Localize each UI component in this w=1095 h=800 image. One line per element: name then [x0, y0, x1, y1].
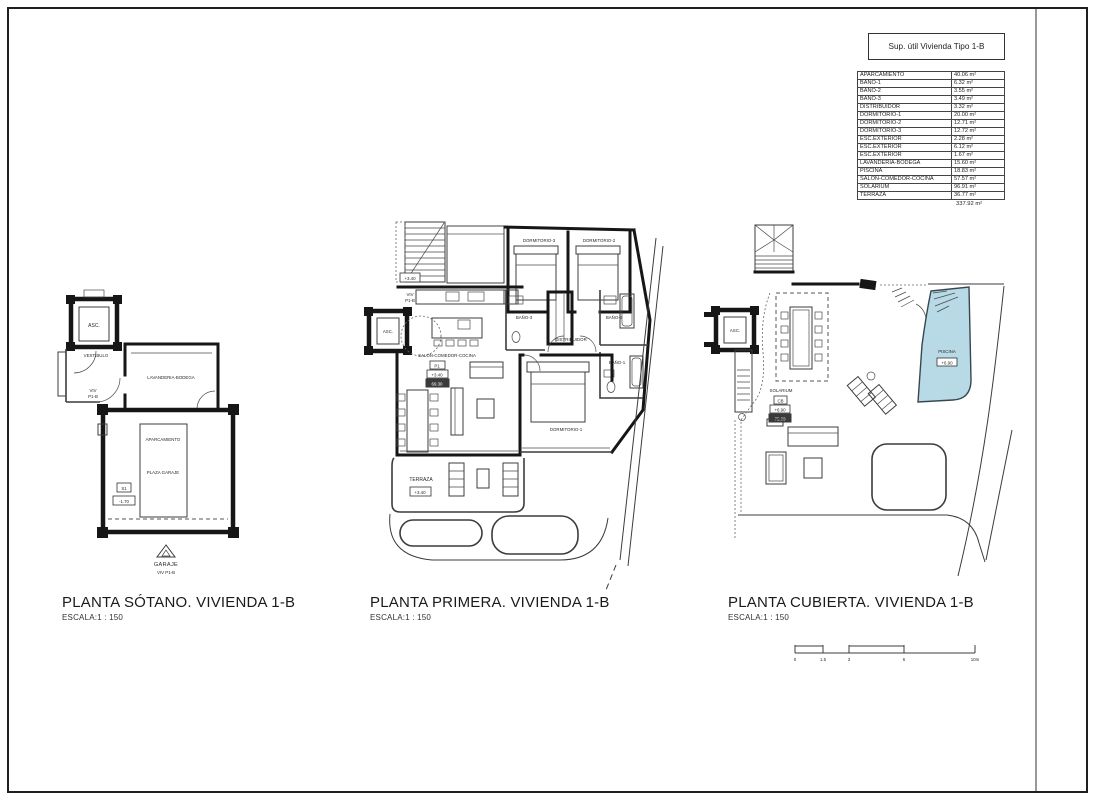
room-area: 96.91 m² [952, 184, 1005, 192]
svg-text:+6.90: +6.90 [941, 360, 953, 365]
level-tag-s1: S1 [117, 483, 131, 492]
plan-title-text: PLANTA PRIMERA. VIVIENDA 1-B [370, 594, 610, 611]
plan-primera-drawing: +3.40 DORMITORIO-3 DORMITORI [364, 222, 663, 590]
label-viv-p1b: P1-B [88, 394, 98, 399]
room-area: 3.49 m² [952, 96, 1005, 104]
living-room: SALÓN-COMEDOR-COCINA P1 +3.40 69.30 [397, 316, 520, 455]
label-viv-p1b: VIV [89, 388, 96, 393]
svg-text:+3.40: +3.40 [431, 372, 443, 377]
access-ladder [735, 350, 752, 421]
plan-title-cubierta: PLANTA CUBIERTA. VIVIENDA 1-B ESCALA:1 :… [728, 594, 974, 622]
room-label: BAÑO-2 [858, 88, 952, 96]
stairs-primera: +3.40 [396, 222, 445, 282]
label-lavanderia: LAVANDERIA-BODEGA [147, 375, 194, 380]
table-row: ESC.EXTERIOR1.67 m² [858, 152, 1005, 160]
room-label: TERRAZA [858, 192, 952, 200]
terrace: TERRAZA +3.40 [392, 458, 524, 512]
table-row: ESC.EXTERIOR6.12 m² [858, 144, 1005, 152]
room-area: 18.83 m² [952, 168, 1005, 176]
scale-tick: 1.5 [820, 657, 827, 662]
table-row: SOLARIUM96.91 m² [858, 184, 1005, 192]
room-label: DORMITORIO-2 [858, 120, 952, 128]
room-area: 3.55 m² [952, 88, 1005, 96]
room-label: APARCAMIENTO [858, 72, 952, 80]
room-area: 36.77 m² [952, 192, 1005, 200]
table-row: BAÑO-16.32 m² [858, 80, 1005, 88]
area-table-title: Sup. útil Vivienda Tipo 1-B [868, 33, 1005, 60]
label-aparcamiento: APARCAMIENTO [146, 437, 181, 442]
stairs-cubierta [755, 225, 793, 272]
room-area: 3.32 m² [952, 104, 1005, 112]
table-row: TERRAZA36.77 m² [858, 192, 1005, 200]
label-vestibulo: VESTIBULO [84, 353, 109, 358]
plan-title-primera: PLANTA PRIMERA. VIVIENDA 1-B ESCALA:1 : … [370, 594, 610, 622]
elevator-sotano: ASC. [66, 290, 122, 351]
label-dormitorio-3: DORMITORIO-3 [523, 238, 556, 243]
room-label: BAÑO-3 [858, 96, 952, 104]
room-label: PISCINA [858, 168, 952, 176]
label-piscina: PISCINA [938, 349, 956, 354]
table-row: LAVANDERIA-BODEGA15.60 m² [858, 160, 1005, 168]
table-row: BAÑO-23.55 m² [858, 88, 1005, 96]
room-label: DORMITORIO-3 [858, 128, 952, 136]
bathroom-3: BAÑO-3 [506, 290, 545, 350]
plan-title-sotano: PLANTA SÓTANO. VIVIENDA 1-B ESCALA:1 : 1… [62, 594, 295, 622]
room-label: ESC.EXTERIOR [858, 152, 952, 160]
room-area: 40.06 m² [952, 72, 1005, 80]
garage-room: APARCAMIENTO PLAZA GARAJE S1 -1.70 [97, 404, 239, 538]
label-salon: SALÓN-COMEDOR-COCINA [418, 353, 476, 358]
drawing-sheet: .w {stroke:#161616;stroke-width:4.5;fill… [0, 0, 1095, 800]
site-boundary-primera [606, 238, 663, 590]
table-row: ESC.EXTERIOR2.28 m² [858, 136, 1005, 144]
area-tag-6930: 69.30 [426, 379, 449, 387]
label-asc: ASC. [88, 323, 100, 329]
table-row: DORMITORIO-312.72 m² [858, 128, 1005, 136]
room-label: SALÓN-COMEDOR-COCINA [858, 176, 952, 184]
room-area: 12.72 m² [952, 128, 1005, 136]
label-viv-p1b: VIV P1-B [157, 570, 175, 575]
area-summary-table: Sup. útil Vivienda Tipo 1-B APARCAMIENTO… [857, 33, 1006, 207]
level-tag-terraza: +3.40 [410, 487, 431, 496]
exterior-wall [505, 227, 634, 230]
plan-cubierta-drawing: ASC. SOLARIUM CB [704, 225, 1012, 576]
level-tag-690: +6.90 [770, 405, 790, 413]
label-distribuidor: DISTRIBUIDOR [555, 337, 586, 342]
room-label: ESC.EXTERIOR [858, 144, 952, 152]
label-plaza-garaje: PLAZA GARAJE [147, 470, 180, 475]
room-label: LAVANDERIA-BODEGA [858, 160, 952, 168]
plan-title-text: PLANTA CUBIERTA. VIVIENDA 1-B [728, 594, 974, 611]
scale-tick: 6 [903, 657, 906, 662]
roof-lounge-furniture [766, 419, 838, 484]
table-row: APARCAMIENTO40.06 m² [858, 72, 1005, 80]
area-table-grid: APARCAMIENTO40.06 m² BAÑO-16.32 m² BAÑO-… [857, 71, 1005, 200]
landing-hatch [447, 226, 504, 234]
scale-tick: 10m [971, 657, 980, 662]
vestibule: VESTIBULO VIV P1-B [58, 349, 120, 402]
elevator-cubierta: ASC. [704, 306, 759, 354]
label-dormitorio-1: DORMITORIO-1 [550, 427, 583, 432]
scale-tick: 3 [848, 657, 851, 662]
label-terraza: TERRAZA [409, 477, 433, 483]
kitchen: VIV P1-B [398, 287, 522, 304]
plan-scale-text: ESCALA:1 : 150 [62, 613, 295, 622]
room-label: SOLARIUM [858, 184, 952, 192]
stair-level-tag: +3.40 [404, 276, 416, 281]
plan-sotano-drawing: ASC. VESTIBULO VIV P1-B LAVANDERIA-BODEG… [58, 290, 239, 575]
svg-text:S1: S1 [121, 486, 127, 491]
room-area: 20.00 m² [952, 112, 1005, 120]
pool: PISCINA +6.90 [918, 287, 971, 402]
bathroom-1: BAÑO-1 [600, 352, 643, 398]
label-solarium: SOLARIUM [770, 388, 793, 393]
bathroom-2: BAÑO-2 [600, 290, 648, 345]
room-label: DORMITORIO-1 [858, 112, 952, 120]
svg-text:+6.90: +6.90 [774, 407, 786, 412]
table-row: DISTRIBUIDOR3.32 m² [858, 104, 1005, 112]
roof-top-edge [793, 279, 1004, 318]
bedroom-1: DORMITORIO-1 [520, 355, 612, 452]
table-row: BAÑO-33.49 m² [858, 96, 1005, 104]
plan-scale-text: ESCALA:1 : 150 [370, 613, 610, 622]
label-viv-p1b: P1-B [405, 298, 415, 303]
room-area: 6.32 m² [952, 80, 1005, 88]
label-bano-2: BAÑO-2 [606, 315, 623, 320]
solarium-dining: SOLARIUM CB +6.90 75.80 [769, 293, 828, 422]
table-row: PISCINA18.83 m² [858, 168, 1005, 176]
plan-title-text: PLANTA SÓTANO. VIVIENDA 1-B [62, 594, 295, 611]
label-garaje: GARAJE [154, 562, 178, 568]
landscaping-primera [390, 514, 608, 560]
area-tag-7580: 75.80 [769, 414, 791, 422]
level-tag-pool: +6.90 [937, 358, 957, 366]
room-label: ESC.EXTERIOR [858, 136, 952, 144]
room-label: BAÑO-1 [858, 80, 952, 88]
room-area: 12.71 m² [952, 120, 1005, 128]
room-area: 2.28 m² [952, 136, 1005, 144]
laundry-room: LAVANDERIA-BODEGA [125, 344, 218, 410]
pergola-pad [872, 444, 946, 510]
level-tag-minus170: -1.70 [113, 496, 135, 505]
room-area: 6.12 m² [952, 144, 1005, 152]
table-row: SALÓN-COMEDOR-COCINA57.57 m² [858, 176, 1005, 184]
room-area: 1.67 m² [952, 152, 1005, 160]
scale-bar: 0 1.5 3 6 10m [794, 645, 980, 662]
svg-text:+3.40: +3.40 [414, 490, 426, 495]
label-asc: ASC. [383, 329, 393, 334]
room-label: DISTRIBUIDOR [858, 104, 952, 112]
sun-loungers [847, 372, 896, 414]
label-bano-3: BAÑO-3 [516, 315, 533, 320]
level-tag-cb: CB [774, 396, 787, 404]
label-viv-p1b: VIV [406, 292, 413, 297]
room-area: 57.57 m² [952, 176, 1005, 184]
level-tag-p1: P1 [430, 361, 445, 369]
svg-text:P1: P1 [434, 363, 440, 368]
garage-entry-symbol: GARAJE VIV P1-B [154, 545, 178, 575]
total-area: 337.92 m² [857, 201, 1006, 207]
level-tag-340: +3.40 [427, 370, 448, 378]
svg-text:-1.70: -1.70 [119, 499, 130, 504]
deck-boundary [735, 293, 947, 540]
label-asc: ASC. [730, 328, 740, 333]
table-row: DORMITORIO-212.71 m² [858, 120, 1005, 128]
table-row: DORMITORIO-120.00 m² [858, 112, 1005, 120]
svg-text:69.30: 69.30 [432, 381, 444, 386]
scale-tick: 0 [794, 657, 797, 662]
room-area: 15.60 m² [952, 160, 1005, 168]
landing [447, 226, 504, 283]
label-dormitorio-2: DORMITORIO-2 [583, 238, 616, 243]
plan-scale-text: ESCALA:1 : 150 [728, 613, 974, 622]
svg-text:CB: CB [777, 398, 783, 403]
